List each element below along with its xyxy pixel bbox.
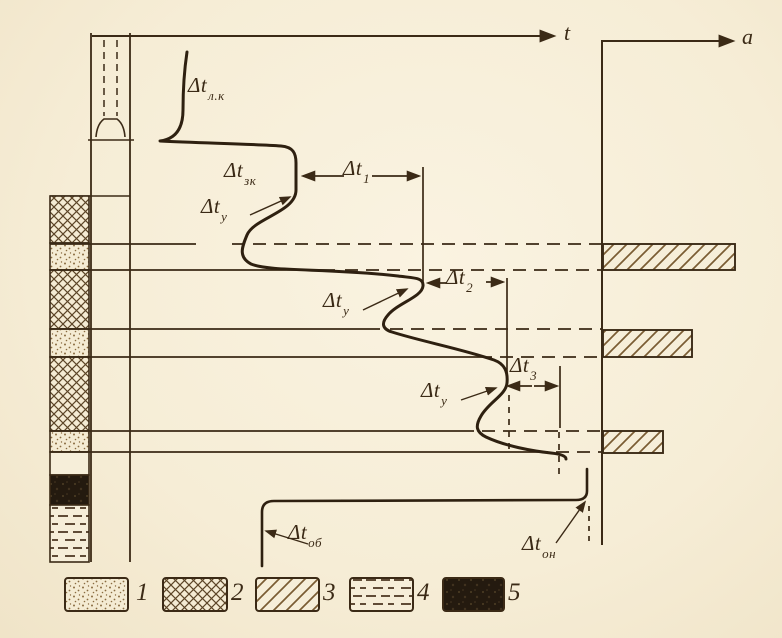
label-dt-lk: Δtл.к: [188, 75, 224, 99]
litho-layer-black: [50, 475, 89, 505]
reference-ticks: [423, 167, 589, 542]
legend-number-2: 2: [231, 580, 244, 605]
legend-swatch-dotted: [65, 578, 128, 611]
legend-swatch-diagonal-hatch: [256, 578, 319, 611]
borehole-walls: [91, 33, 130, 562]
litho-layer-crosshatch: [50, 270, 89, 329]
legend-number-5: 5: [508, 580, 521, 605]
legend-swatch-solid-black: [443, 578, 504, 611]
label-dt-1: Δt1: [343, 158, 369, 182]
litho-layer-dotted: [50, 329, 89, 357]
flow-bar-3: [603, 431, 663, 453]
litho-layer-blank: [50, 452, 89, 475]
tubing-dashes: [104, 40, 117, 116]
label-dt-u2: Δtу: [323, 290, 348, 314]
flow-bar-2: [603, 330, 692, 357]
legend-number-3: 3: [323, 580, 336, 605]
litho-layer-crosshatch: [50, 357, 89, 431]
tubing-shoe-icon: [96, 119, 125, 137]
diagram-stage: t a Δtл.к Δtзк Δtу Δt1 Δtу Δt2 Δtу Δt3 Δ…: [0, 0, 782, 638]
label-dt-3: Δt3: [510, 355, 536, 379]
a-axis-label: a: [742, 26, 754, 48]
temperature-curve: [160, 52, 566, 459]
diagram-canvas: [0, 0, 782, 638]
t-axis-label: t: [564, 22, 571, 44]
label-dt-zk: Δtзк: [224, 160, 255, 184]
litho-layer-shale: [50, 505, 89, 562]
litho-layer-crosshatch: [50, 196, 89, 243]
label-dt-ob: Δtоб: [288, 522, 321, 546]
litho-layer-dotted: [50, 243, 89, 270]
litho-layer-dotted: [50, 431, 89, 452]
label-dt-u3: Δtу: [421, 380, 446, 404]
flow-bar-1: [603, 244, 735, 270]
legend-swatch-horizontal-dashes: [350, 578, 413, 611]
label-dt-u1: Δtу: [201, 196, 226, 220]
legend-swatch-crosshatch: [163, 578, 227, 611]
legend-number-1: 1: [136, 580, 149, 605]
label-dt-on: Δtон: [522, 533, 555, 557]
zone-boundary-lines: [50, 244, 602, 452]
lithology-column: [50, 196, 89, 562]
legend: [65, 578, 504, 611]
label-dt-2: Δt2: [446, 267, 472, 291]
legend-number-4: 4: [417, 580, 430, 605]
